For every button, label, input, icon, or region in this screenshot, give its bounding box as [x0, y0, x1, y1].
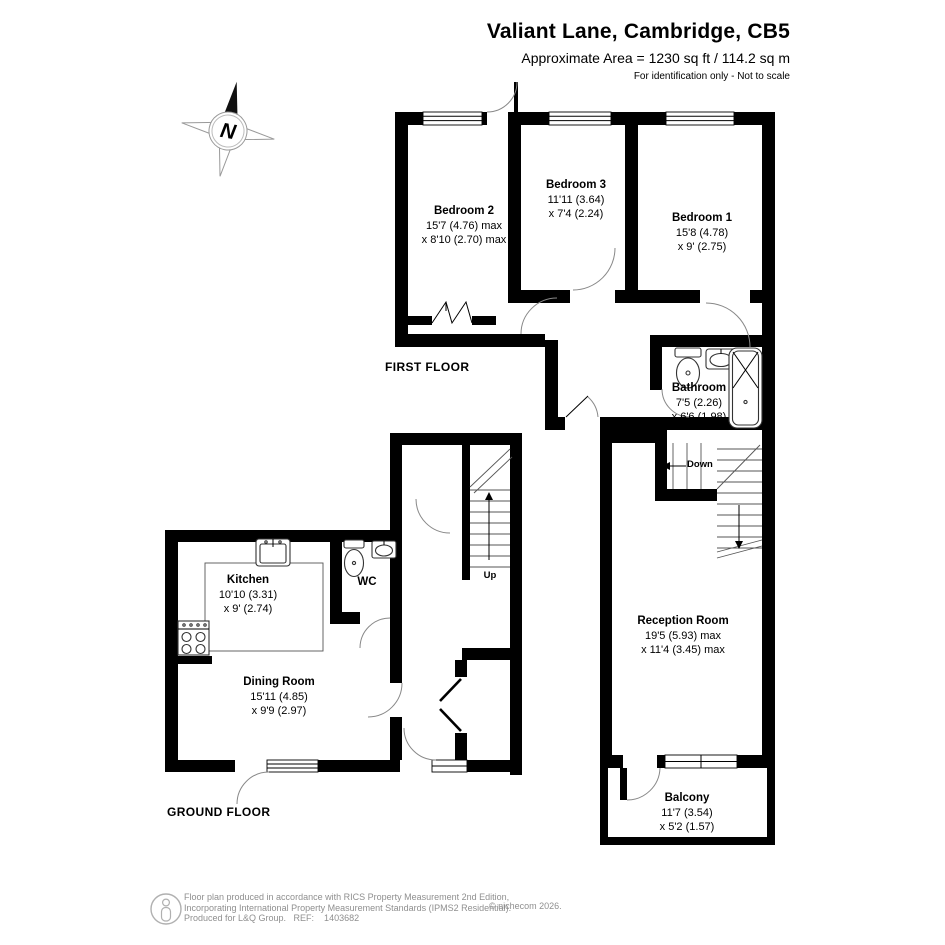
reception-walls [600, 430, 775, 768]
page-title: Valiant Lane, Cambridge, CB5 [487, 20, 790, 44]
wc-label: WC [277, 575, 457, 590]
plan-header: Valiant Lane, Cambridge, CB5 Approximate… [487, 20, 790, 82]
first-floor-label: FIRST FLOOR [385, 360, 469, 374]
wc-basin-icon [372, 541, 396, 558]
nichecom-logo [151, 894, 181, 924]
floorplan-graphic: N [0, 0, 945, 945]
footer-line1: Floor plan produced in accordance with R… [184, 892, 511, 903]
up-arrow-icon [485, 492, 493, 560]
stairs-down-label: Down [687, 459, 713, 470]
bathroom-label: Bathroom 7'5 (2.26) x 6'6 (1.98) [609, 381, 789, 424]
copyright-note: © nichecom 2026. [489, 901, 562, 911]
kitchen-sink-icon [256, 539, 290, 566]
footer-line2: Incorporating International Property Mea… [184, 903, 511, 914]
stairs-up-label: Up [478, 570, 502, 581]
up-stairs [470, 449, 512, 567]
balcony-label: Balcony 11'7 (3.54) x 5'2 (1.57) [597, 791, 777, 834]
footer-line3: Produced for L&Q Group. REF: 1403682 [184, 913, 511, 924]
stove-icon [176, 621, 212, 664]
footer-disclaimer: Floor plan produced in accordance with R… [184, 892, 511, 924]
bedroom1-label: Bedroom 1 15'8 (4.78) x 9' (2.75) [612, 211, 792, 254]
compass-rose: N [174, 74, 283, 185]
area-subtitle: Approximate Area = 1230 sq ft / 114.2 sq… [487, 50, 790, 66]
floorplan-page: N [0, 0, 945, 945]
disclaimer-note: For identification only - Not to scale [487, 71, 790, 82]
wardrobe [408, 302, 496, 325]
reception-room-label: Reception Room 19'5 (5.93) max x 11'4 (3… [593, 614, 773, 657]
wc-toilet-icon [344, 540, 364, 577]
ground-floor-label: GROUND FLOOR [167, 805, 270, 819]
first-floor-windows [423, 112, 734, 125]
wc-fixtures [344, 540, 396, 577]
dining-room-label: Dining Room 15'11 (4.85) x 9'9 (2.97) [189, 675, 369, 718]
